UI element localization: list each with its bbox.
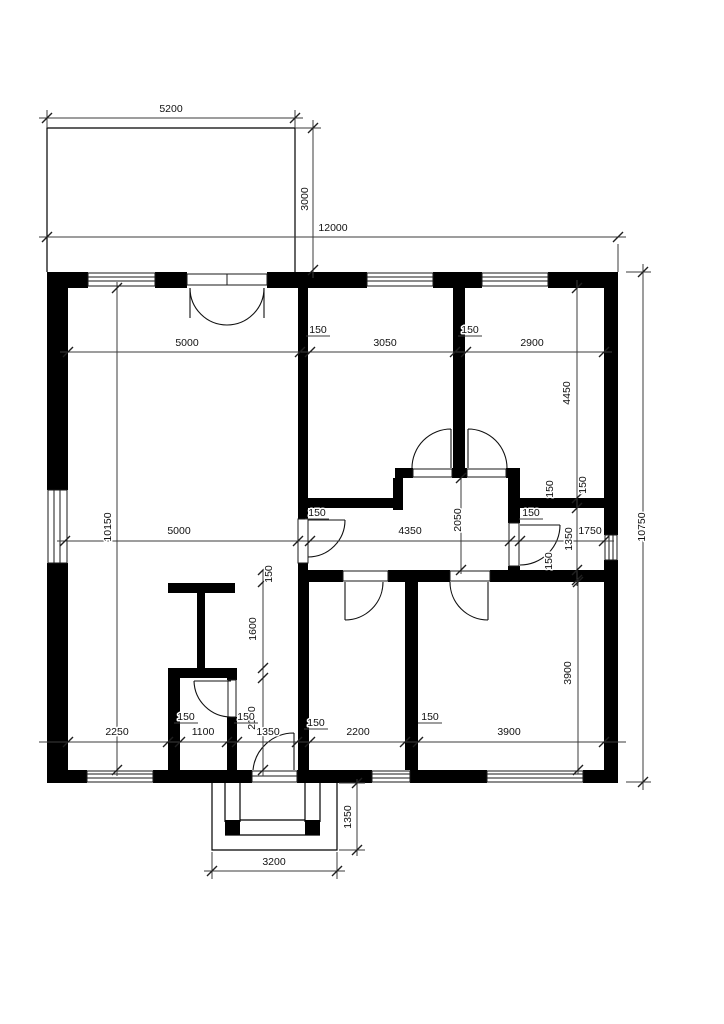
door-hall-to-room4 — [343, 571, 388, 620]
windows — [48, 273, 617, 782]
dim-label-wall-150-hall-door: 150 — [308, 507, 326, 519]
dim-label-living-width-mid: 5000 — [167, 525, 191, 537]
window-top-room2 — [367, 273, 433, 286]
dim-label-closet-depth: 1600 — [247, 617, 259, 641]
window-bottom-room5 — [487, 771, 583, 782]
floor-plan-drawing: 5200120003000107501015050003050290015015… — [0, 0, 724, 1024]
door-terrace-double — [187, 274, 267, 325]
doors — [187, 274, 560, 782]
dim-labels: 5200120003000107501015050003050290015015… — [102, 103, 648, 868]
dim-label-living-width-top: 5000 — [175, 337, 199, 349]
dim-label-porch-depth: 1350 — [342, 805, 354, 829]
dim-label-lobby-width: 1350 — [256, 726, 280, 738]
dim-label-wall-150-wc-right: 150 — [237, 711, 255, 723]
dim-label-wall-150-rooms45: 150 — [421, 711, 439, 723]
dim-label-overall-depth: 10750 — [636, 512, 648, 541]
porch-steps — [212, 783, 337, 850]
dim-label-room3-width: 2900 — [520, 337, 544, 349]
dim-label-overall-width: 12000 — [318, 222, 347, 234]
dim-label-wall-150-bath-top-a: 150 — [544, 480, 556, 498]
window-bottom-room4 — [372, 771, 410, 782]
dim-label-living-width-bottom: 2250 — [105, 726, 129, 738]
window-left-living — [48, 490, 67, 563]
door-hall-to-room3 — [467, 429, 507, 477]
dim-label-room2-width: 3050 — [373, 337, 397, 349]
dim-label-wall-150-top-2: 150 — [461, 324, 479, 336]
dim-label-room5-depth: 3900 — [562, 661, 574, 685]
dim-label-porch-width: 3200 — [262, 856, 286, 868]
dim-label-hall-width: 4350 — [398, 525, 422, 537]
dim-label-interior-depth: 10150 — [102, 512, 114, 541]
dim-label-hall-depth: 2050 — [452, 508, 464, 532]
dim-label-wall-150-hall-bottom: 150 — [263, 565, 275, 583]
porch-pillar-right — [305, 820, 320, 835]
door-hall-to-room2 — [412, 429, 452, 477]
dim-label-wall-150-wc-left: 150 — [177, 711, 195, 723]
floor-plan-page: 5200120003000107501015050003050290015015… — [0, 0, 724, 1024]
door-hall-to-room5 — [450, 571, 490, 620]
dim-label-wall-150-bath-door: 150 — [522, 507, 540, 519]
dim-label-wall-150-lobby-right: 150 — [307, 717, 325, 729]
dim-label-wall-150-bath-top-b: 150 — [577, 476, 589, 494]
dim-label-room4-width: 2200 — [346, 726, 370, 738]
dim-label-wall-150-bath-bottom: 150 — [543, 552, 555, 570]
door-lobby-to-wc — [194, 680, 236, 717]
dim-label-terrace-depth: 3000 — [299, 187, 311, 211]
porch-pillar-left — [225, 820, 240, 835]
dim-label-room5-width: 3900 — [497, 726, 521, 738]
dim-label-terrace-width: 5200 — [159, 103, 183, 115]
window-top-room3 — [482, 273, 548, 286]
dim-label-wc-width: 1100 — [192, 726, 215, 738]
terrace-outline — [47, 128, 295, 272]
dim-label-bath-depth: 1350 — [563, 527, 575, 551]
window-bottom-living — [87, 771, 153, 782]
dim-label-bath-width: 1750 — [578, 525, 602, 537]
dim-label-wall-150-top-1: 150 — [309, 324, 327, 336]
dim-label-room3-depth: 4450 — [561, 381, 573, 405]
